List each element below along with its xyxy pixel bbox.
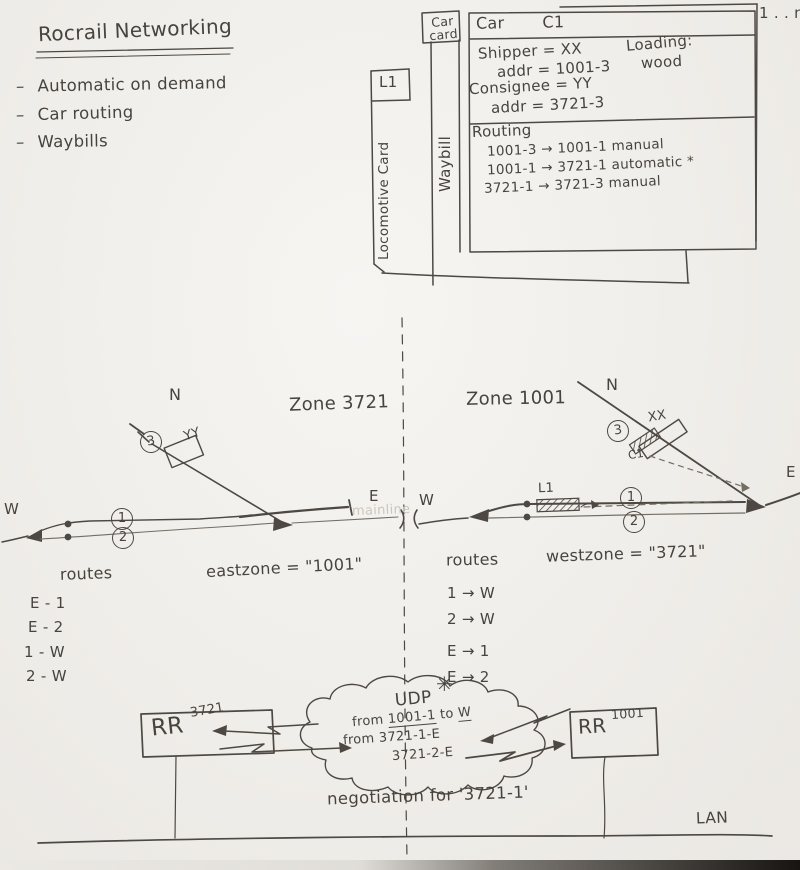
east-routes-title: routes: [446, 552, 499, 570]
zone-divider-dashed-line: [402, 318, 407, 858]
note-bullet: –Car routing: [16, 103, 134, 123]
route-entry: 2 → W: [447, 612, 495, 628]
note-bullet: –Waybills: [16, 132, 108, 151]
negotiation-asterisk: ✳: [436, 674, 453, 695]
route-entry: E - 1: [30, 596, 65, 612]
cloud-protocol-label: UDP: [394, 689, 432, 710]
bullet-dash: –: [16, 105, 25, 124]
locomotive-l1-shape: [537, 498, 579, 511]
direction-arrow-icon: [591, 500, 599, 509]
msg-arrowhead-icon: [212, 725, 227, 736]
title-underline: [36, 48, 233, 58]
west-merge-switch-icon: [273, 518, 293, 531]
rr-1001-zone: 1001: [611, 706, 645, 721]
msg1-mid: to: [435, 706, 459, 723]
msg1-prefix: from: [352, 712, 389, 730]
sketch-page: Rocrail Networking –Automatic on demand …: [0, 0, 800, 870]
bullet-text: Automatic on demand: [37, 73, 226, 95]
erased-mainline-label: mainline: [352, 503, 411, 519]
east-zone-title: Zone 1001: [466, 389, 566, 410]
route-entry: E - 2: [28, 620, 63, 636]
east-track-1-badge: 1: [620, 487, 642, 509]
route-entry: E → 2: [447, 670, 490, 686]
rr-3721-name: RR: [150, 713, 185, 740]
car-card-tab: Car card: [425, 14, 461, 43]
bullet-text: Car routing: [37, 102, 133, 124]
west-siding-bumper-icon: [130, 424, 144, 434]
east-compass-n: N: [606, 377, 618, 394]
east-zone-e-label: E: [786, 465, 796, 481]
car-card-header: CarC1: [476, 14, 565, 32]
route-entry: 1 - W: [24, 645, 65, 661]
bullet-text: Waybills: [37, 131, 108, 151]
sensor-dot: [524, 501, 531, 508]
msg-arrowhead-icon: [480, 734, 494, 744]
route-entry: 1 → W: [447, 586, 495, 602]
note-bullet: –Automatic on demand: [16, 74, 227, 95]
west-compass-n: N: [169, 387, 181, 404]
loco-card-header: L1: [379, 75, 398, 91]
car-c1-label: C1: [627, 447, 644, 461]
routing-title: Routing: [472, 123, 532, 141]
loco-l1-label: L1: [538, 482, 555, 496]
rr-1001-name: RR: [577, 715, 606, 737]
waybill-card-label: Waybill: [438, 136, 454, 192]
bullet-dash: –: [16, 133, 25, 152]
east-switch-icon: [469, 509, 489, 522]
scan-edge-artifact: [0, 860, 800, 870]
east-merge-switch-icon: [746, 499, 766, 513]
route-entry: 2 - W: [26, 669, 67, 685]
east-zone-w-label: W: [419, 493, 434, 509]
west-zone-title: Zone 3721: [289, 393, 390, 415]
msg1-dest: W: [457, 705, 472, 722]
stack-count-label: 1 . . n: [759, 6, 800, 22]
west-track-2-badge: 2: [112, 527, 134, 549]
bullet-dash: –: [16, 77, 25, 96]
route-dashes: [650, 456, 741, 486]
msg-arrowhead-icon: [553, 740, 566, 751]
lan-line: [38, 835, 772, 843]
sensor-dot: [65, 534, 72, 541]
west-zone-w-label: W: [4, 502, 19, 518]
sensor-dot: [65, 521, 72, 528]
tab-line2: card: [426, 27, 461, 43]
car-id: C1: [542, 12, 564, 31]
west-zone-track-drawing: [2, 424, 398, 542]
route-entry: E → 1: [447, 644, 490, 660]
lan-drop-right: [604, 757, 605, 838]
lan-drop-left: [175, 756, 176, 838]
loco-card-label: Locomotive Card: [377, 142, 391, 260]
east-track-2-badge: 2: [623, 511, 645, 533]
building-xx-label: XX: [647, 409, 668, 426]
west-routes-title: routes: [60, 565, 113, 584]
lan-label: LAN: [696, 809, 729, 826]
sensor-dot: [524, 514, 531, 521]
route-arrowhead-icon: [741, 482, 750, 492]
loading-value: wood: [641, 54, 683, 72]
car-type: Car: [476, 13, 505, 32]
